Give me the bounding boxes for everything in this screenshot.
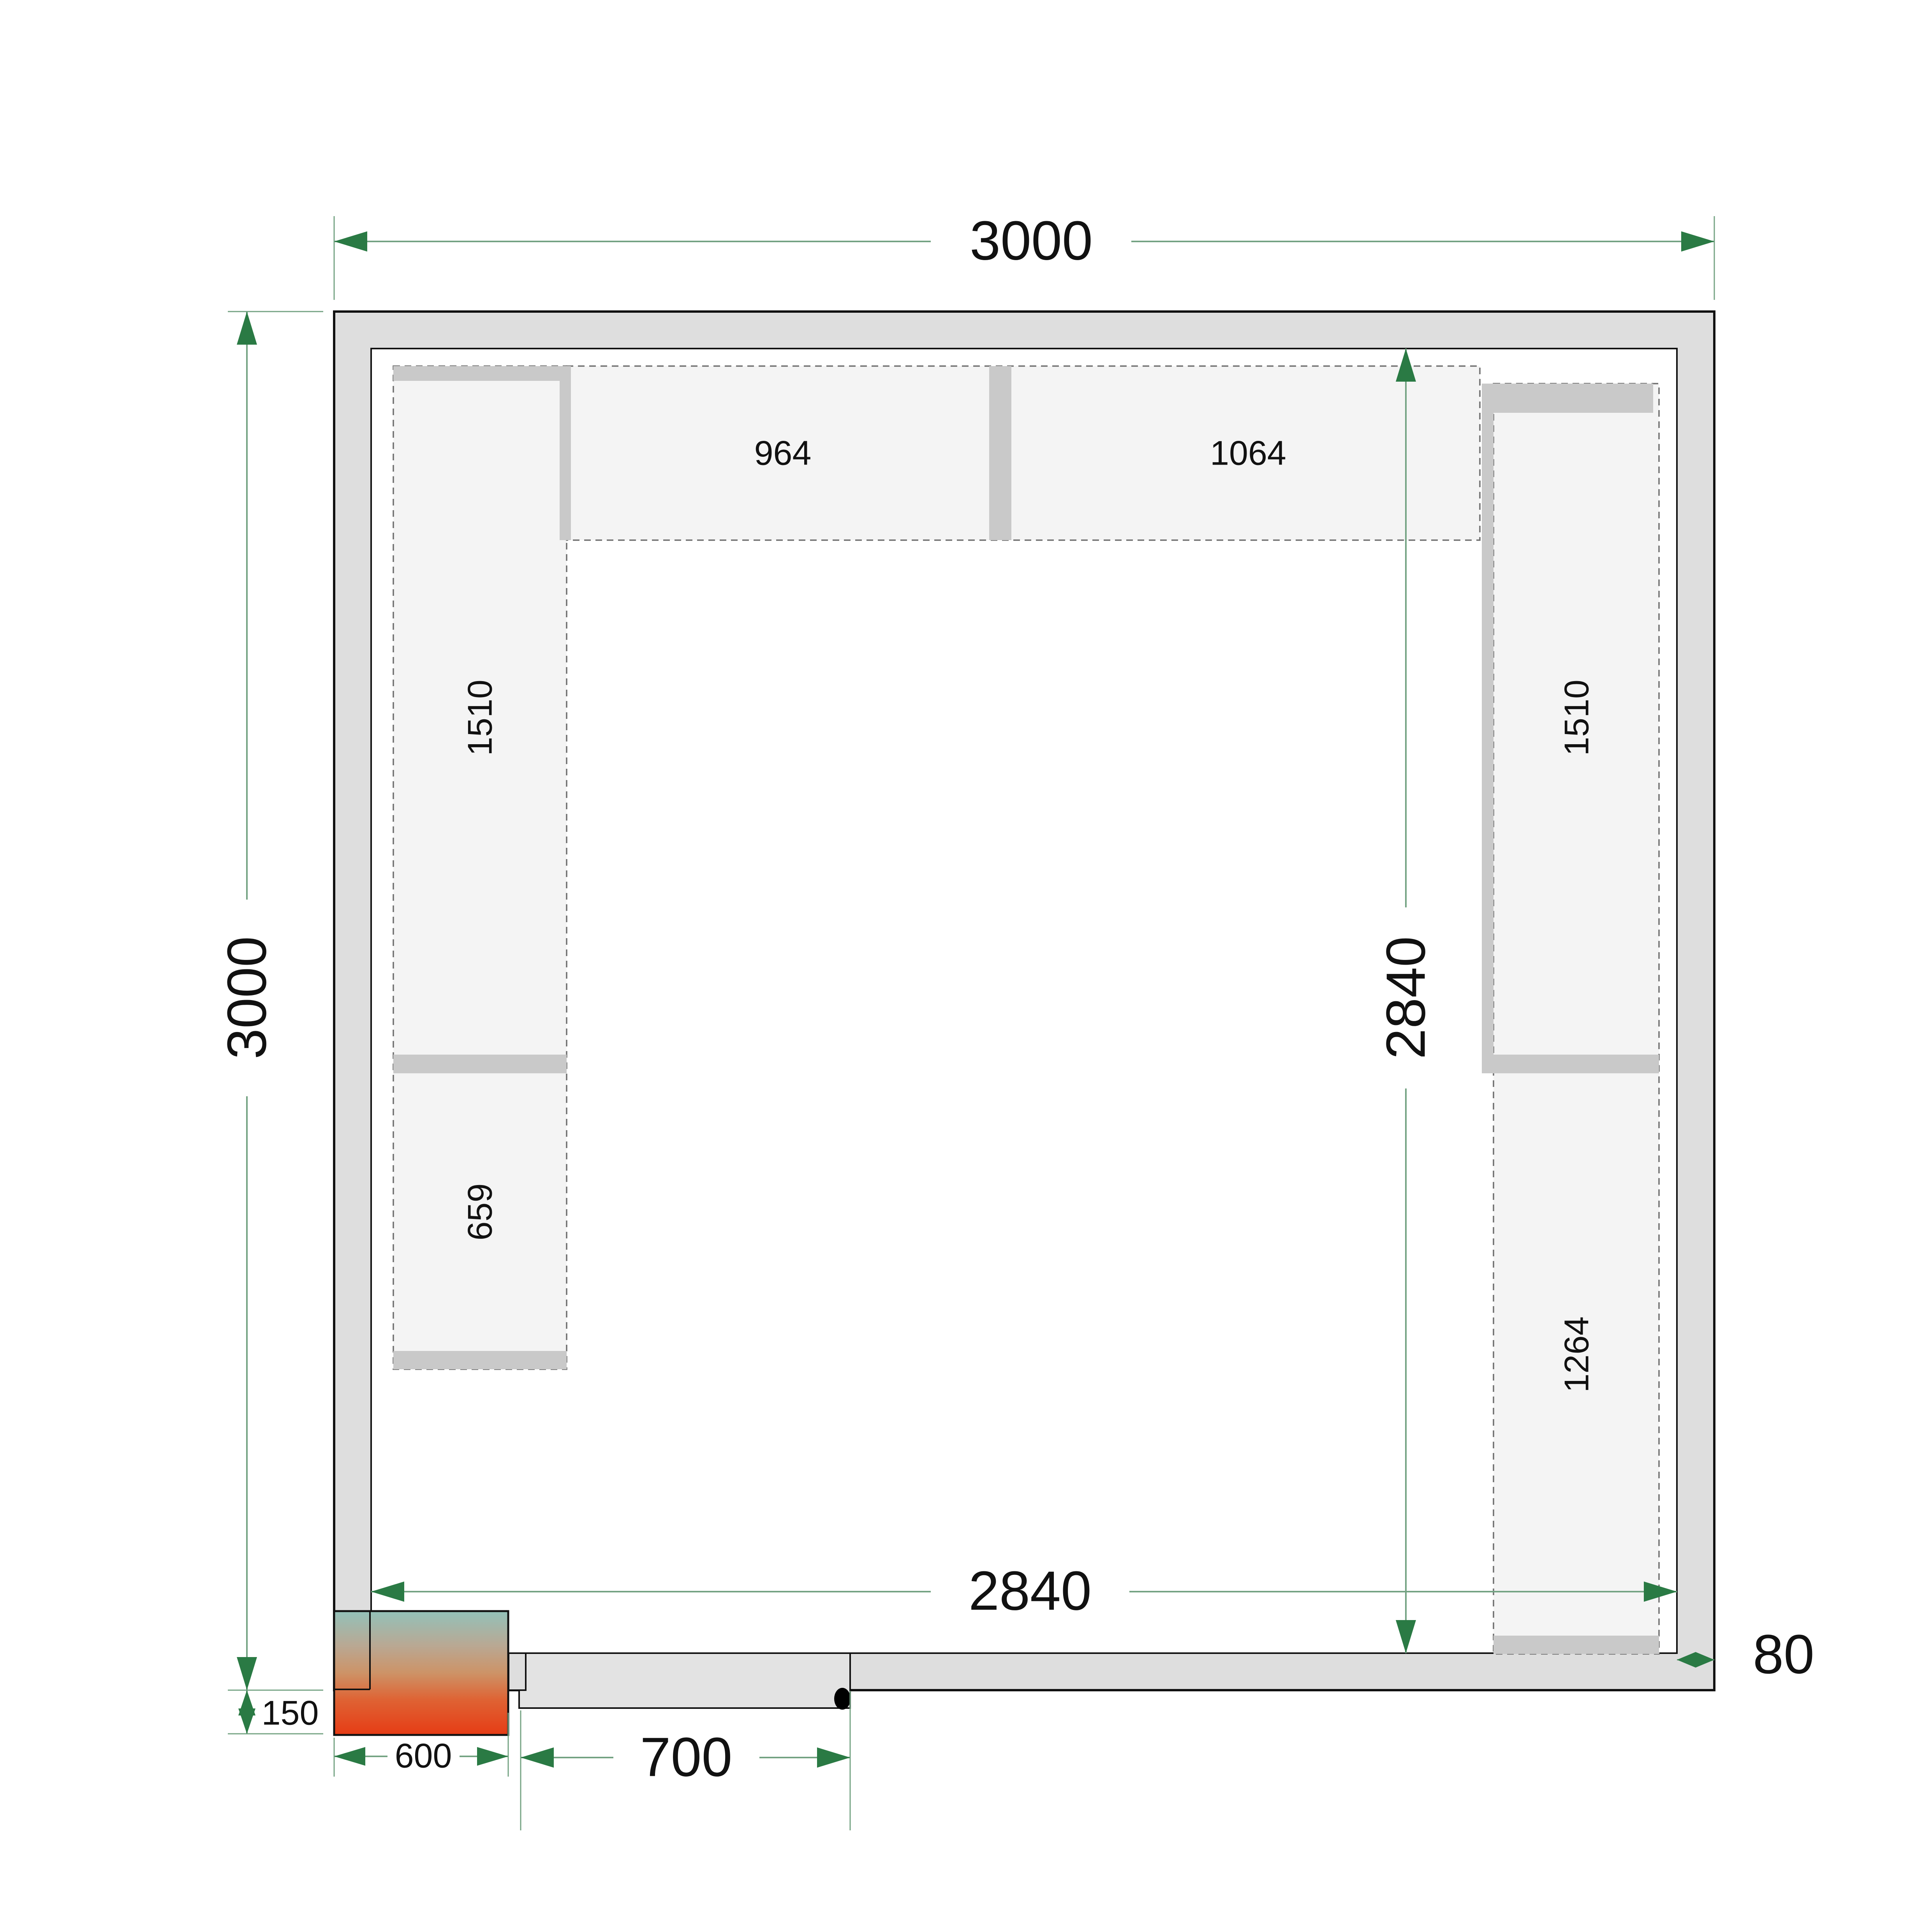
- door-hinge-dot: [834, 1688, 851, 1710]
- arrowhead-down: [238, 1708, 255, 1734]
- cooling-unit: [334, 1611, 508, 1735]
- dim-unit-protrusion: 150: [228, 1690, 323, 1734]
- dim-label-outer-height: 3000: [216, 936, 278, 1059]
- dim-label-unit-protrusion: 150: [262, 1694, 319, 1732]
- support-toprow-middle-post: [989, 366, 1011, 540]
- wall-stub: [509, 1653, 526, 1690]
- arrowhead-right: [477, 1747, 508, 1766]
- floor-plan-drawing: 964 1064 1510 659 1510 1264 3000: [0, 0, 1932, 1932]
- floor-plan-canvas: 964 1064 1510 659 1510 1264 3000: [0, 0, 1932, 1932]
- shelf-label-top-right: 1064: [1210, 434, 1286, 472]
- support-left-bottom: [393, 1351, 567, 1369]
- arrowhead-up: [237, 312, 257, 345]
- support-right-top-band: [1482, 384, 1653, 413]
- shelf-label-left-lower: 659: [461, 1184, 499, 1241]
- door: [509, 1650, 851, 1710]
- arrowhead-left: [334, 1747, 365, 1766]
- arrowhead-right: [1681, 231, 1714, 252]
- shelf-right-column: [1493, 384, 1659, 1654]
- support-right-divider: [1493, 1055, 1659, 1073]
- shelf-label-right-lower: 1264: [1557, 1316, 1596, 1393]
- shelf-top-row: [567, 366, 1480, 540]
- support-left-top: [393, 366, 567, 381]
- door-leaf: [519, 1653, 850, 1708]
- dim-outer-height: 3000: [216, 312, 324, 1690]
- shelf-label-right-upper: 1510: [1557, 680, 1596, 756]
- shelf-label-left-upper: 1510: [461, 680, 499, 756]
- dim-outer-width: 3000: [334, 210, 1714, 300]
- arrowhead-down: [237, 1657, 257, 1690]
- support-right-left-strip: [1482, 384, 1493, 1073]
- arrowhead-left: [521, 1747, 554, 1768]
- dim-label-inner-width: 2840: [969, 1560, 1092, 1622]
- dim-label-inner-height: 2840: [1375, 936, 1437, 1059]
- shelf-label-top-left: 964: [754, 434, 812, 472]
- arrowhead-left: [334, 231, 367, 252]
- dim-label-unit-width: 600: [395, 1737, 452, 1775]
- support-right-bottom: [1493, 1636, 1659, 1654]
- support-left-divider: [393, 1055, 567, 1073]
- dim-label-outer-width: 3000: [970, 210, 1093, 272]
- dim-label-wall-thickness: 80: [1753, 1624, 1814, 1685]
- support-toprow-left-post: [560, 366, 571, 540]
- arrowhead-right: [817, 1747, 850, 1768]
- dim-label-door-width: 700: [640, 1726, 733, 1788]
- cooling-unit-body: [334, 1611, 508, 1735]
- dim-door-width: 700: [521, 1691, 850, 1830]
